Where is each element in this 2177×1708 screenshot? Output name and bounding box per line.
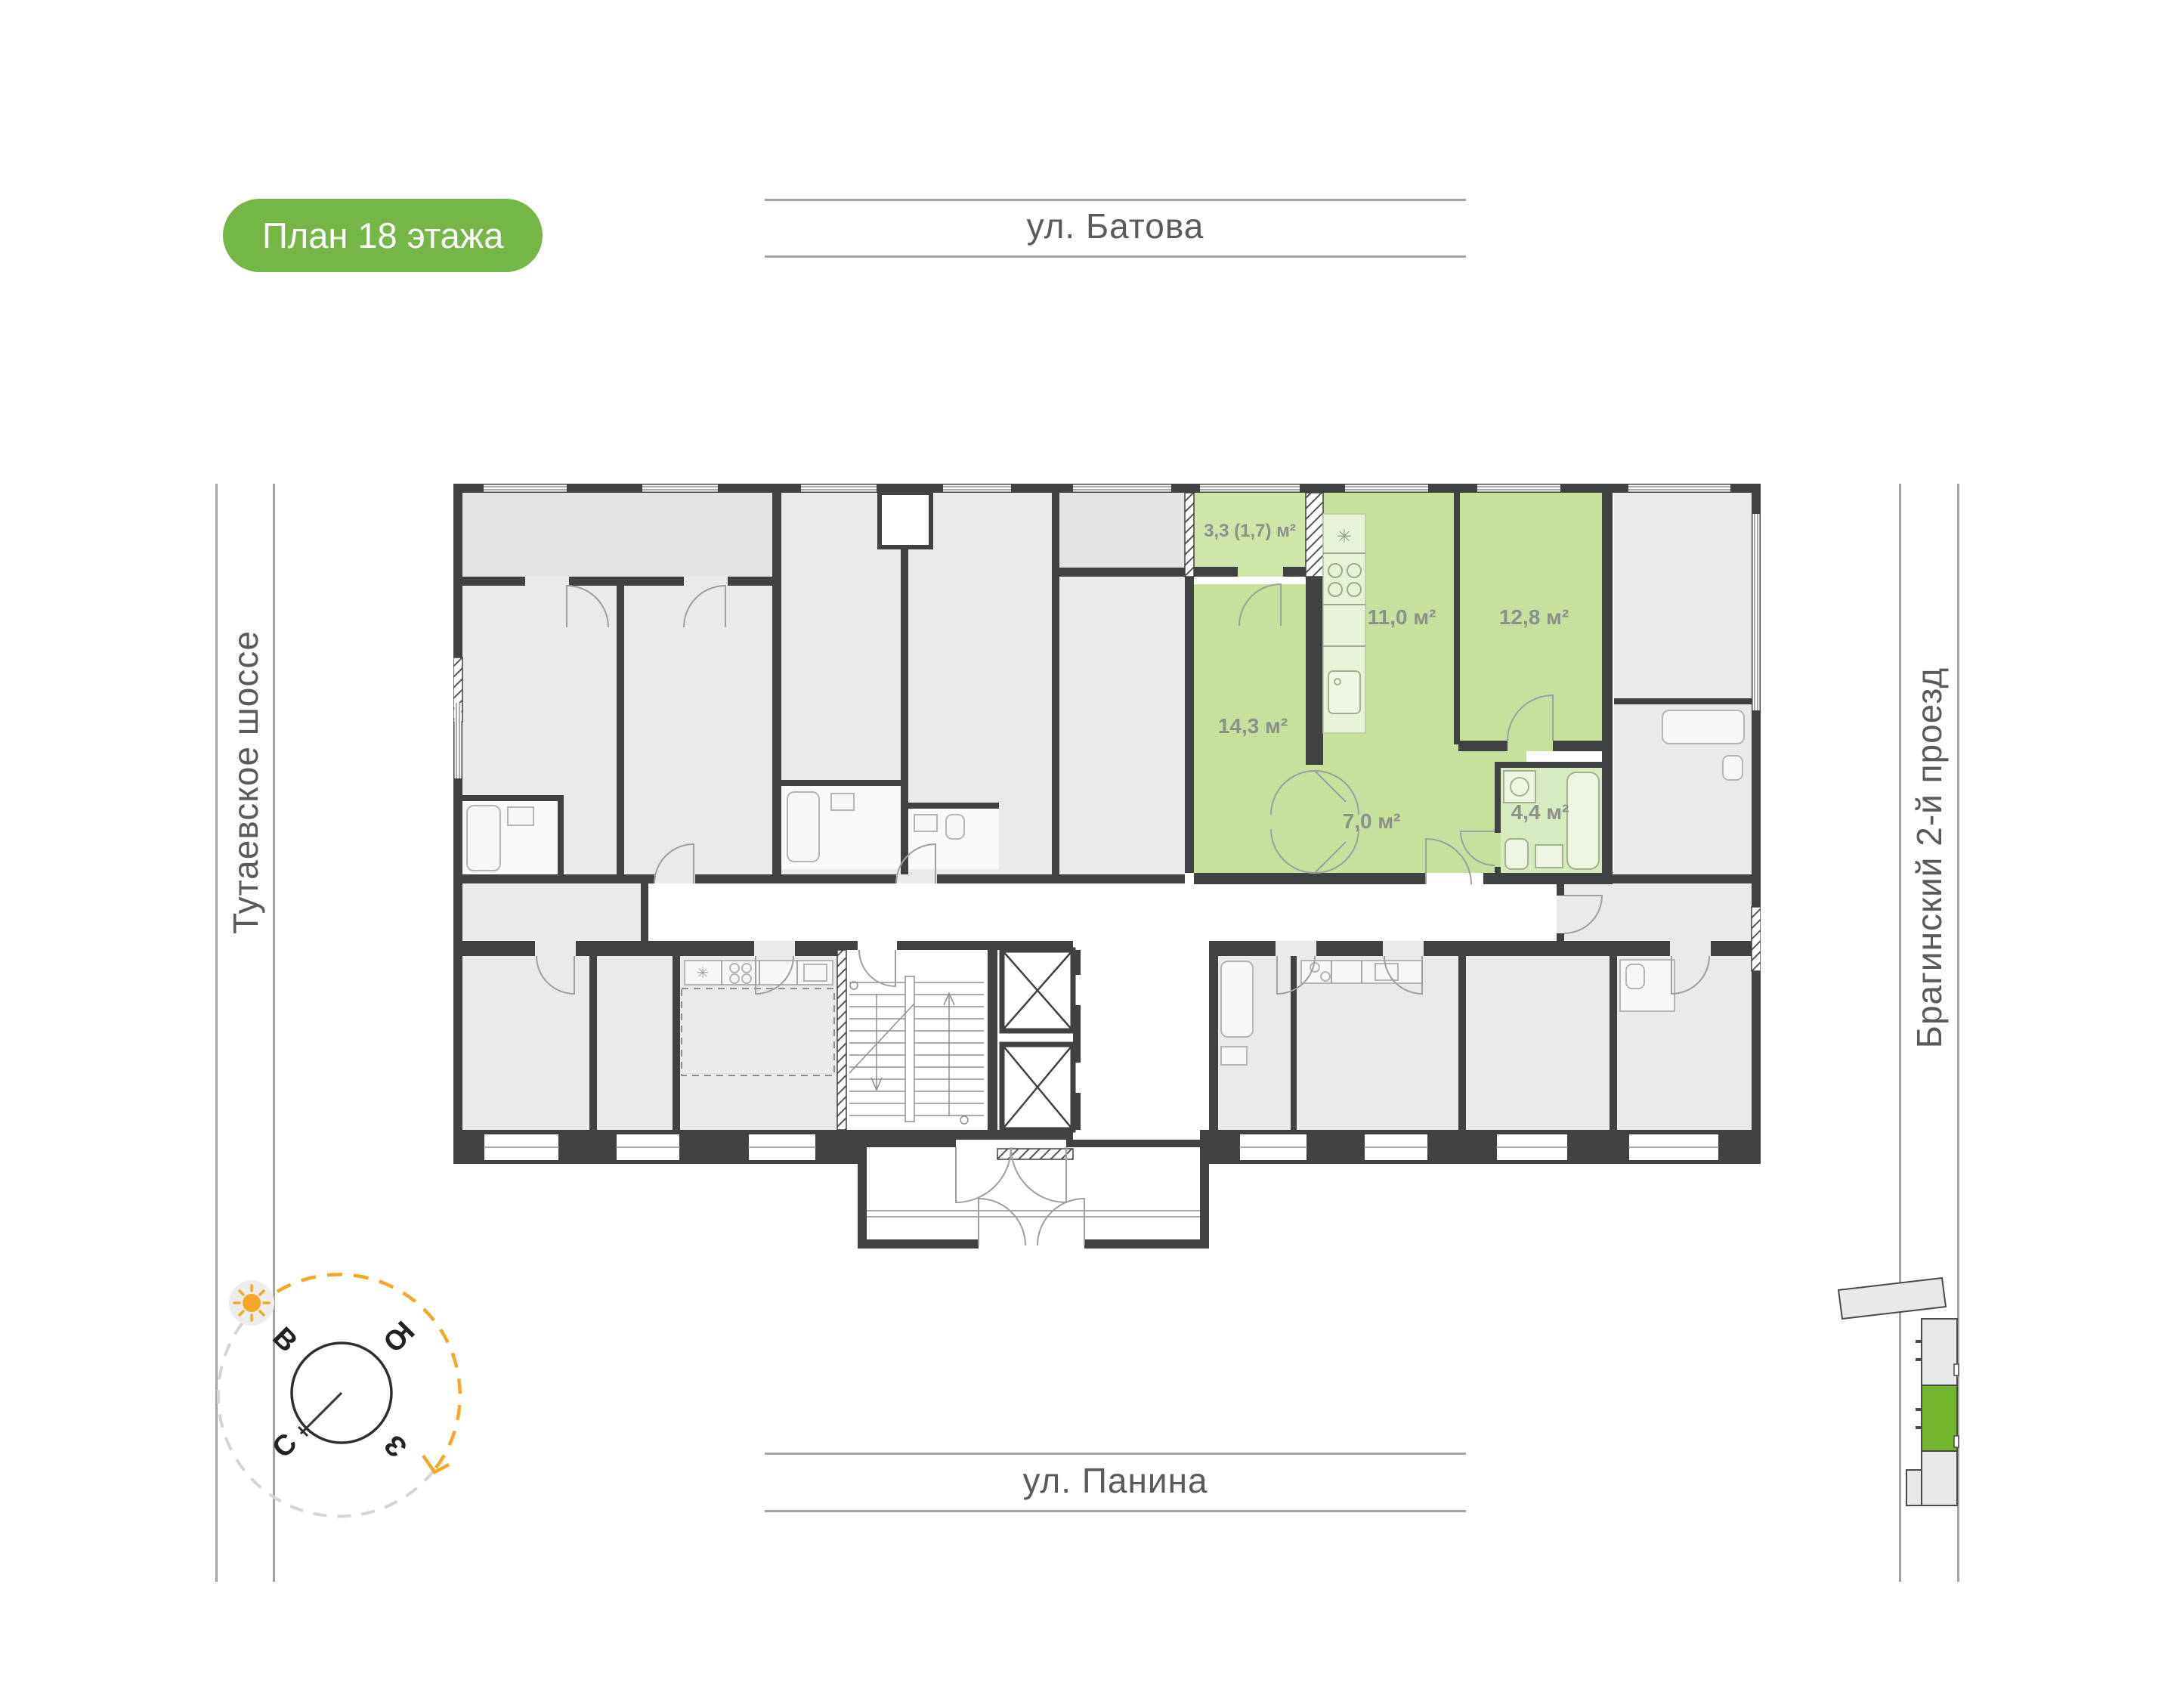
sink-icon <box>508 807 533 825</box>
minimap-wing-bottom <box>1906 1470 1922 1505</box>
fridge-icon: ✳ <box>1337 527 1352 547</box>
page: План 18 этажа ул. Батова ул. Панина Тута… <box>0 0 2177 1708</box>
building-minimap <box>1829 1258 1980 1523</box>
sun-path-arrow-icon <box>423 1456 449 1472</box>
compass-south-label: Ю <box>376 1314 419 1357</box>
floor-plan: ✳ ✳ <box>453 484 1761 1249</box>
street-line-bottom-1 <box>765 1453 1466 1455</box>
compass-north-label: С <box>266 1427 303 1464</box>
sun-icon <box>229 1280 274 1326</box>
area-label-kitchen: 11,0 м² <box>1368 605 1436 629</box>
street-label-right: Брагинский 2-й проезд <box>1909 667 1950 1048</box>
kitchen-sink-icon <box>1328 671 1360 713</box>
bathtub-icon-green <box>1567 772 1599 869</box>
street-line-bottom-2 <box>765 1510 1466 1512</box>
area-label-bathroom: 4,4 м² <box>1511 800 1569 824</box>
washer-icon <box>1504 771 1535 803</box>
area-label-bedroom: 12,8 м² <box>1499 605 1569 629</box>
bathtub-icon <box>467 806 500 871</box>
compass-west-label: З <box>379 1428 414 1464</box>
compass-east-label: В <box>266 1321 303 1358</box>
room-hallway <box>1306 744 1526 873</box>
area-label-balcony: 3,3 (1,7) м² <box>1204 521 1296 541</box>
minimap-ticks <box>1916 1340 1922 1429</box>
minimap-wing-top <box>1838 1278 1946 1319</box>
svg-text:✳: ✳ <box>697 965 710 982</box>
street-line-top-1 <box>765 199 1466 201</box>
street-label-left: Тутаевское шоссе <box>225 630 266 934</box>
toilet-icon <box>946 815 964 839</box>
street-label-top: ул. Батова <box>765 206 1466 246</box>
street-line-top-2 <box>765 255 1466 258</box>
compass: В Ю С З <box>198 1251 485 1553</box>
floor-badge: План 18 этажа <box>223 199 543 272</box>
street-label-bottom: ул. Панина <box>765 1460 1466 1501</box>
area-label-living: 14,3 м² <box>1218 714 1288 738</box>
area-label-hallway: 7,0 м² <box>1343 809 1401 833</box>
minimap-highlighted-section <box>1922 1385 1957 1451</box>
